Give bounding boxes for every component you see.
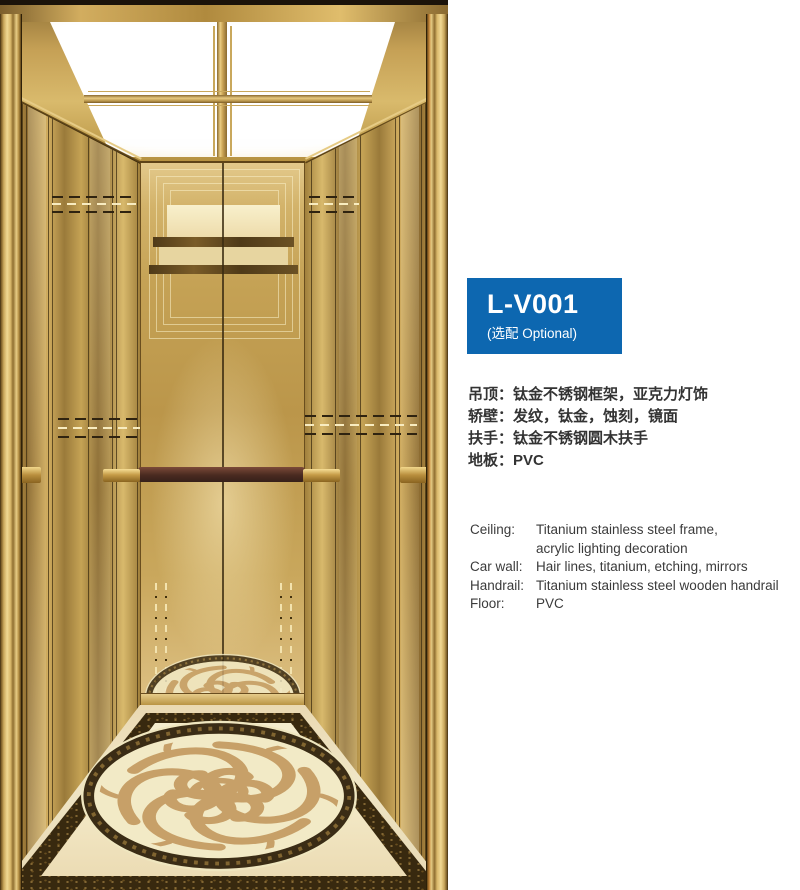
wall-panel-seam [26, 0, 27, 890]
skirting [141, 693, 305, 705]
spec-en-label: Ceiling: [470, 521, 536, 558]
spec-en-row: Handrail: Titanium stainless steel woode… [470, 577, 779, 596]
spec-cn-carwall: 轿壁：发纹，钛金，蚀刻，镜面 [468, 406, 708, 428]
spec-en-label: Car wall: [470, 558, 536, 577]
wall-etching-dashes [52, 211, 136, 213]
wall-etching-dashes [58, 427, 140, 429]
front-jamb-pillar-left [0, 14, 22, 890]
wall-panel-seam [399, 0, 400, 890]
spec-cn-ceiling: 吊顶：钛金不锈钢框架，亚克力灯饰 [468, 384, 708, 406]
wall-etching-dashes [52, 203, 136, 205]
handrail-bracket-right [303, 469, 340, 482]
wall-etching-dashes [309, 203, 359, 205]
spec-en-label: Floor: [470, 595, 536, 614]
ceiling-mullion-line [88, 105, 370, 106]
ceiling-mullion-horizontal [84, 95, 372, 103]
optional-note: (选配 Optional) [487, 322, 622, 342]
spec-en-value: Titanium stainless steel frame, acrylic … [536, 521, 779, 558]
spec-en-row: Car wall: Hair lines, titanium, etching,… [470, 558, 779, 577]
elevator-interior-photo [0, 0, 448, 890]
ceiling-front-frame [0, 5, 448, 22]
handrail-bracket-left [103, 469, 140, 482]
wall-etching-dashes [305, 433, 417, 435]
front-jamb-pillar-right [426, 14, 448, 890]
wall-panel-seam [395, 0, 396, 890]
wall-etching-dashes [305, 415, 417, 417]
wall-panel-seam [48, 0, 49, 890]
product-info-panel: L-V001 (选配 Optional) 吊顶：钛金不锈钢框架，亚克力灯饰 轿壁… [448, 0, 800, 890]
spec-en-row: Floor: PVC [470, 595, 779, 614]
wall-panel-seam [421, 0, 422, 890]
spec-en-value: Hair lines, titanium, etching, mirrors [536, 558, 779, 577]
wall-etching-dashes [58, 418, 140, 420]
spec-en-label: Handrail: [470, 577, 536, 596]
model-badge: L-V001 (选配 Optional) [467, 278, 622, 354]
wall-mirror-sheen [401, 0, 419, 890]
handrail-back [138, 467, 305, 482]
door-center-seam [222, 163, 224, 705]
wall-etching-dashes [309, 196, 359, 198]
wall-panel-seam [52, 0, 53, 890]
model-number: L-V001 [487, 290, 622, 320]
spec-en-row: Ceiling: Titanium stainless steel frame,… [470, 521, 779, 558]
spec-en-value: PVC [536, 595, 779, 614]
specs-english: Ceiling: Titanium stainless steel frame,… [470, 521, 779, 614]
wall-etching-dashes [52, 196, 136, 198]
wall-etching-dashes [309, 211, 359, 213]
car-back-wall [140, 163, 305, 705]
catalog-page: L-V001 (选配 Optional) 吊顶：钛金不锈钢框架，亚克力灯饰 轿壁… [0, 0, 800, 890]
spec-cn-handrail: 扶手：钛金不锈钢圆木扶手 [468, 428, 708, 450]
wall-etching-dashes [305, 424, 417, 426]
wall-mirror-sheen [28, 0, 46, 890]
spec-en-value-line: Titanium stainless steel frame, [536, 521, 779, 540]
floor-medallion [74, 714, 364, 878]
wall-panel-seam [22, 0, 23, 890]
ceiling-mullion-line [88, 91, 370, 92]
specs-chinese: 吊顶：钛金不锈钢框架，亚克力灯饰 轿壁：发纹，钛金，蚀刻，镜面 扶手：钛金不锈钢… [468, 384, 708, 472]
ceiling-mullion-vertical [217, 22, 227, 157]
wall-etching-dashes [58, 436, 140, 438]
spec-en-value-line: acrylic lighting decoration [536, 540, 779, 559]
spec-cn-floor: 地板：PVC [468, 450, 708, 472]
spec-en-value: Titanium stainless steel wooden handrail [536, 577, 779, 596]
